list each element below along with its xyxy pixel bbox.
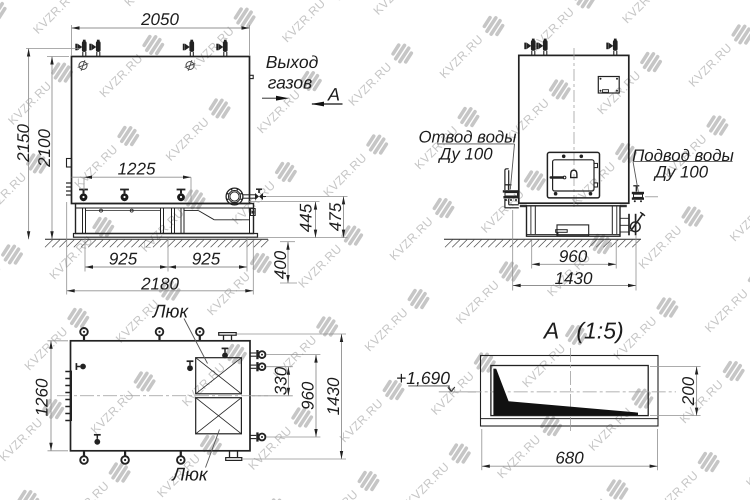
svg-text:+1,690: +1,690 xyxy=(396,368,450,388)
svg-text:2100: 2100 xyxy=(35,129,54,168)
svg-text:960: 960 xyxy=(299,381,318,410)
svg-text:400: 400 xyxy=(271,250,290,279)
svg-text:2050: 2050 xyxy=(140,10,179,29)
svg-text:680: 680 xyxy=(555,449,584,468)
svg-text:1225: 1225 xyxy=(118,160,156,179)
svg-text:Люк: Люк xyxy=(171,464,209,485)
svg-text:(1:5): (1:5) xyxy=(576,317,623,343)
svg-text:475: 475 xyxy=(326,202,345,231)
svg-text:925: 925 xyxy=(109,250,138,269)
svg-text:925: 925 xyxy=(192,250,221,269)
svg-text:газов: газов xyxy=(268,72,313,92)
svg-text:Люк: Люк xyxy=(152,301,190,322)
svg-text:А: А xyxy=(542,317,559,343)
svg-text:1430: 1430 xyxy=(555,269,593,288)
svg-text:445: 445 xyxy=(297,203,316,232)
svg-text:960: 960 xyxy=(559,247,588,266)
svg-text:2180: 2180 xyxy=(140,275,179,294)
svg-text:1260: 1260 xyxy=(33,378,52,416)
svg-text:200: 200 xyxy=(679,376,698,406)
svg-text:А: А xyxy=(327,84,340,104)
svg-text:Выход: Выход xyxy=(266,52,319,72)
svg-text:Ду 100: Ду 100 xyxy=(437,145,493,164)
svg-text:330: 330 xyxy=(272,366,291,395)
svg-text:1430: 1430 xyxy=(324,377,343,415)
svg-text:Ду 100: Ду 100 xyxy=(653,163,709,182)
svg-text:2150: 2150 xyxy=(14,124,33,163)
